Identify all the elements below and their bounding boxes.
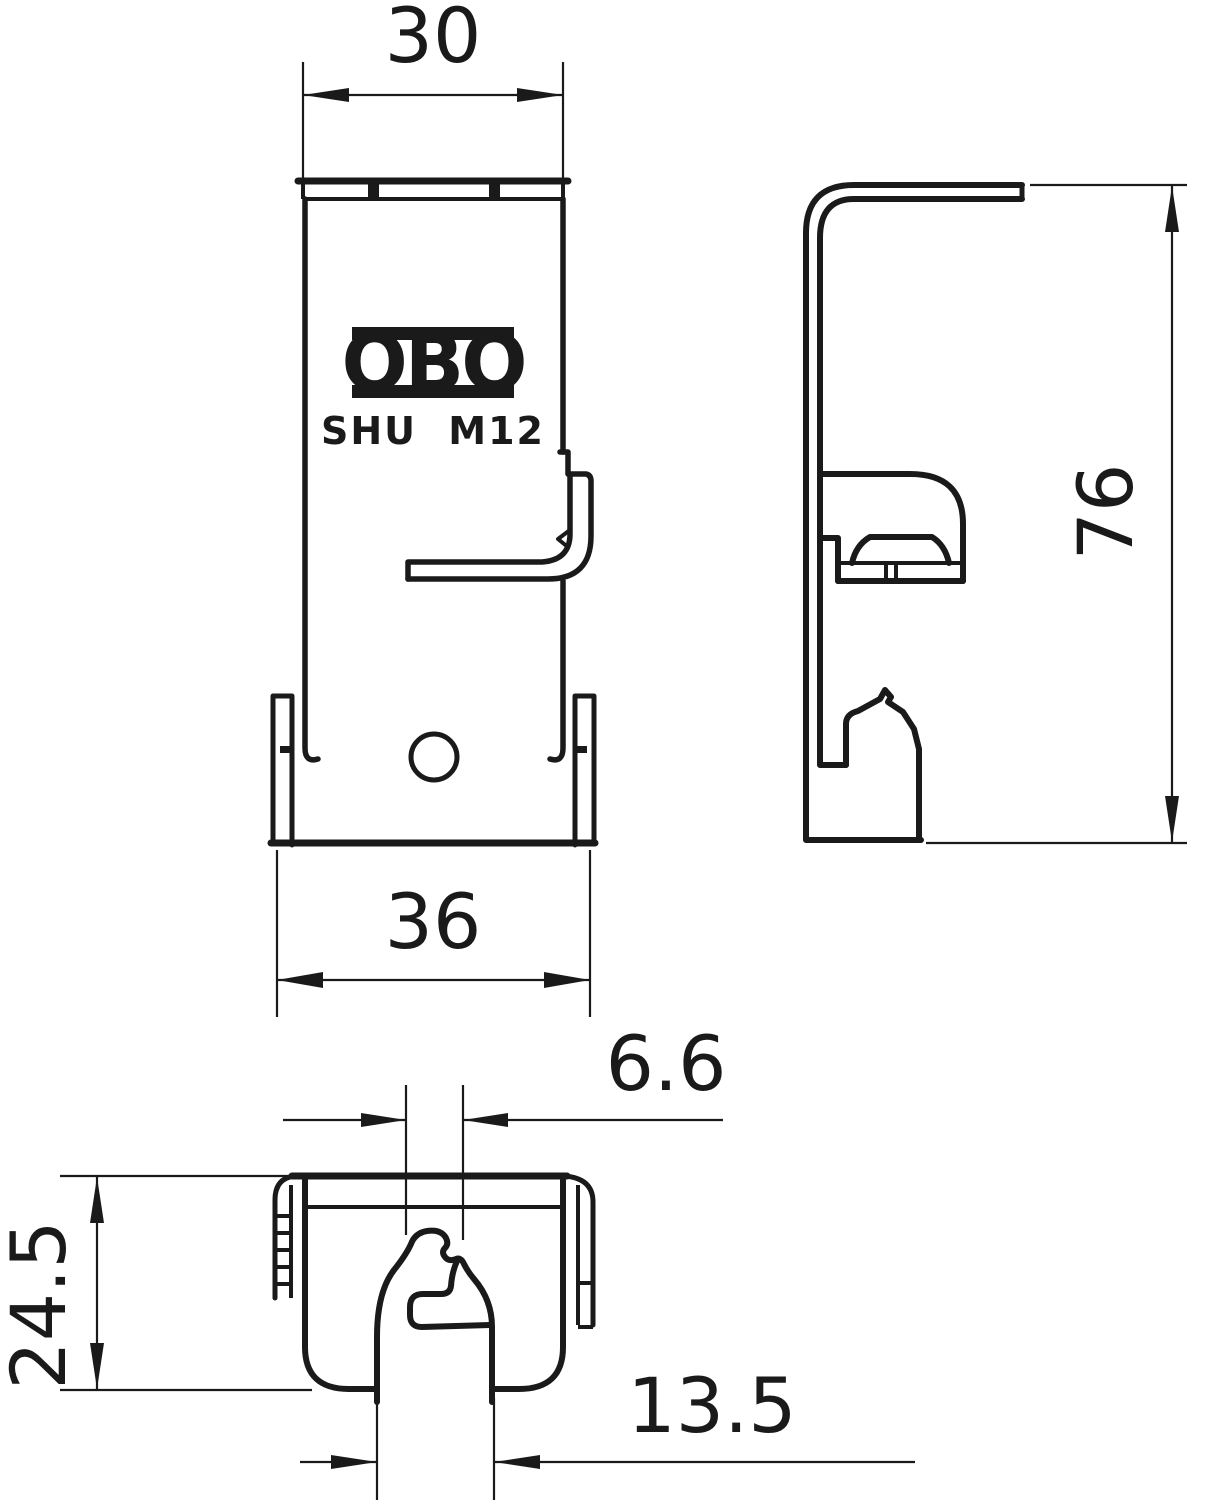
arrowhead-left — [277, 972, 323, 988]
model-label: SHU M12 — [321, 409, 545, 453]
dimension-value: 6.6 — [606, 1019, 727, 1108]
dim-bottom-width: 36 — [277, 850, 590, 1017]
left-side-tab — [273, 696, 292, 845]
band-divider — [368, 179, 379, 201]
hook-tab-inner — [408, 477, 570, 579]
arrowhead-left — [331, 1455, 377, 1469]
technical-drawing-page: 30 OBO SHU M12 — [0, 0, 1207, 1500]
dim-tab-width: 13.5 — [300, 1361, 915, 1500]
keyhole-tab-outline — [377, 1231, 492, 1402]
arrowhead-top — [1165, 186, 1179, 232]
arrowhead-right — [463, 1113, 508, 1127]
obo-logo: OBO — [341, 319, 524, 409]
dim-top-width: 30 — [303, 0, 563, 179]
technical-drawing: 30 OBO SHU M12 — [0, 0, 1207, 1500]
arrowhead-right — [517, 88, 563, 102]
arrowhead-right — [494, 1455, 540, 1469]
band-divider — [489, 179, 500, 201]
dim-depth: 24.5 — [0, 1176, 312, 1390]
logo-text: OBO — [341, 319, 524, 409]
bottom-view — [275, 1176, 593, 1402]
arrowhead-bottom — [90, 1343, 104, 1389]
dimension-value: 24.5 — [0, 1220, 83, 1389]
arrowhead-right — [544, 972, 590, 988]
dimension-value: 76 — [1061, 464, 1150, 561]
arrowhead-left — [361, 1113, 406, 1127]
side-view — [806, 185, 1022, 840]
dimension-value: 30 — [385, 0, 482, 80]
body-left-edge — [305, 199, 318, 760]
clip-left-step — [822, 538, 838, 581]
mounting-hole — [411, 734, 457, 780]
arrowhead-top — [90, 1177, 104, 1223]
dimension-value: 36 — [385, 877, 482, 966]
profile-inner — [820, 199, 1022, 765]
jagged-edge — [846, 690, 919, 838]
front-view: OBO SHU M12 — [271, 179, 595, 845]
arrowhead-left — [303, 88, 349, 102]
clip-dome — [852, 537, 949, 563]
profile-outer — [806, 185, 1022, 840]
body-right-edge-lower — [550, 581, 563, 760]
right-tab-tick — [575, 746, 587, 753]
left-tab-tick — [280, 746, 292, 753]
arrowhead-bottom — [1165, 796, 1179, 842]
keyhole-inner-hook — [410, 1261, 490, 1327]
dimension-value: 13.5 — [627, 1361, 796, 1450]
right-side-tab — [575, 696, 594, 845]
